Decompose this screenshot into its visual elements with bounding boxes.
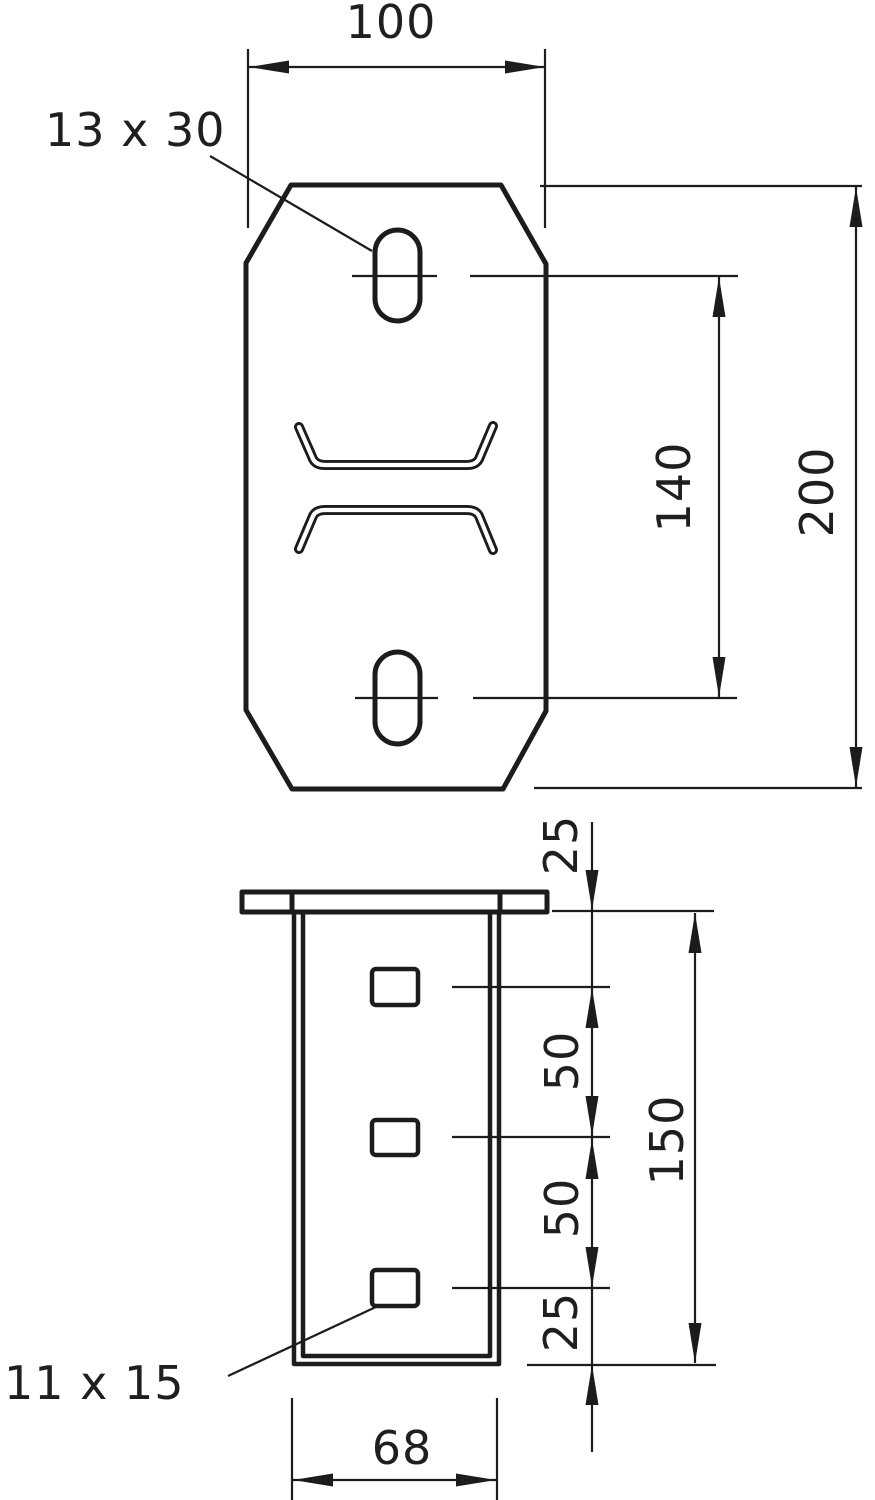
square-hole-1 — [372, 969, 418, 1005]
dim-arrowhead — [586, 988, 599, 1028]
dim-top-offset-label: 25 — [534, 815, 588, 876]
slot-size-label: 13 x 30 — [45, 103, 226, 157]
dim-arrowhead — [713, 657, 726, 697]
dim-width-label: 100 — [346, 0, 437, 49]
dim-height-label: 200 — [790, 447, 844, 538]
emboss-rib-lower-inner — [299, 510, 493, 550]
slot-size-leader-line — [210, 156, 372, 251]
dim-arrowhead — [689, 913, 702, 953]
drawing-page: 100 140 200 13 x 30 — [0, 0, 875, 1500]
dim-side-height: 150 — [640, 913, 702, 1363]
dim-arrowhead — [850, 187, 863, 227]
dim-arrowhead — [293, 1474, 333, 1487]
hole-size-label: 11 x 15 — [4, 1356, 185, 1410]
square-hole-3 — [372, 1270, 418, 1306]
dim-slot-spacing: 140 — [647, 277, 726, 697]
technical-drawing-canvas: 100 140 200 13 x 30 — [0, 0, 875, 1500]
dim-slot-spacing-label: 140 — [647, 442, 701, 533]
dim-side-width-label: 68 — [372, 1421, 433, 1475]
dim-arrowhead — [713, 277, 726, 317]
dim-arrowhead — [249, 61, 289, 74]
dim-side-height-label: 150 — [640, 1095, 694, 1186]
dim-arrowhead — [586, 1096, 599, 1136]
dim-bottom-offset-label: 25 — [534, 1292, 588, 1353]
slot-size-callout: 13 x 30 — [45, 103, 372, 251]
dim-width: 100 — [248, 0, 545, 228]
channel-inner-wall — [303, 912, 490, 1356]
dim-arrowhead — [586, 1247, 599, 1287]
emboss-rib-lower — [299, 510, 493, 550]
dim-width-extension-lines — [248, 49, 545, 228]
dim-arrowhead — [586, 1139, 599, 1179]
emboss-rib-upper-inner — [299, 426, 493, 465]
dim-arrowhead — [456, 1474, 496, 1487]
dim-hole-spacing-1-label: 50 — [535, 1031, 589, 1092]
front-view: 100 140 200 13 x 30 — [45, 0, 863, 789]
dim-arrowhead — [505, 61, 545, 74]
dim-arrowhead — [689, 1323, 702, 1363]
dim-side-width: 68 — [292, 1398, 497, 1500]
emboss-rib-upper — [299, 426, 493, 465]
emboss-rib — [299, 426, 493, 550]
dim-hole-spacing-2-label: 50 — [535, 1178, 589, 1239]
dim-arrowhead — [586, 1365, 599, 1405]
side-view: 25 50 50 25 150 68 11 x 15 — [4, 815, 716, 1500]
square-hole-2 — [372, 1120, 418, 1155]
dim-arrowhead — [850, 747, 863, 787]
